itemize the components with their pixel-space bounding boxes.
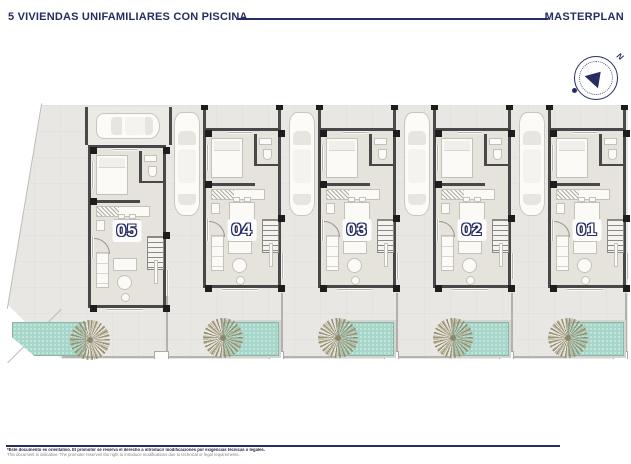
window — [206, 145, 209, 171]
floor-plan: 02 — [433, 128, 511, 288]
window — [321, 145, 324, 171]
toilet — [263, 149, 272, 160]
side-wall — [318, 107, 321, 128]
interior-wall — [254, 164, 280, 166]
tv-unit — [154, 260, 158, 284]
floor-plan: 04 — [203, 128, 281, 288]
bed — [96, 155, 128, 195]
bed — [326, 138, 358, 178]
interior-wall — [554, 183, 600, 186]
round-chair — [236, 276, 245, 285]
door-arc — [324, 221, 340, 237]
interior-wall — [254, 134, 257, 166]
sofa — [326, 235, 339, 271]
garden-door — [567, 288, 603, 291]
dining-table — [459, 202, 485, 220]
palm-tree-icon — [203, 318, 243, 358]
round-chair — [351, 276, 360, 285]
entrance-door — [573, 131, 597, 134]
side-wall — [623, 107, 626, 128]
garden-door — [107, 308, 143, 311]
page-title: 5 VIVIENDAS UNIFAMILIARES CON PISCINA — [8, 11, 248, 23]
interior-wall — [139, 151, 142, 183]
side-wall — [548, 107, 551, 128]
masterplan-label: MASTERPLAN — [545, 11, 624, 23]
entrance-door — [343, 131, 367, 134]
house-number: 04 — [232, 220, 253, 239]
sofa — [441, 235, 454, 271]
floor-plan: 03 — [318, 128, 396, 288]
bathroom-sink — [374, 138, 387, 145]
tv-unit — [499, 243, 503, 267]
side-wall — [278, 107, 281, 128]
car-icon — [519, 112, 545, 216]
bed — [556, 138, 588, 178]
dining-table — [344, 202, 370, 220]
compass-icon: N — [574, 56, 618, 100]
interior-wall — [484, 164, 510, 166]
window — [551, 145, 554, 171]
garden-door — [452, 288, 488, 291]
fridge — [211, 203, 220, 214]
bed — [211, 138, 243, 178]
interior-wall — [599, 134, 602, 166]
toilet — [608, 149, 617, 160]
house-number-badge: 01 — [573, 219, 602, 241]
bathroom-sink — [144, 155, 157, 162]
sofa — [343, 241, 367, 254]
round-table — [117, 275, 132, 290]
footer-disclaimer: *Este documento es orientativo. El promo… — [7, 448, 595, 458]
toilet — [378, 149, 387, 160]
door-arc — [209, 221, 225, 237]
car-icon — [96, 113, 160, 139]
round-table — [577, 258, 592, 273]
window — [626, 253, 629, 279]
fridge — [96, 220, 105, 231]
bed — [441, 138, 473, 178]
tv-unit — [269, 243, 273, 267]
toilet — [148, 166, 157, 177]
sofa — [113, 258, 137, 271]
sofa — [573, 241, 597, 254]
interior-wall — [139, 181, 165, 183]
floor-plan: 01 — [548, 128, 626, 288]
interior-wall — [369, 164, 395, 166]
entrance-door — [228, 131, 252, 134]
round-chair — [466, 276, 475, 285]
garden-door — [222, 288, 258, 291]
compass-dot — [572, 88, 577, 93]
sofa — [556, 235, 569, 271]
interior-wall — [439, 183, 485, 186]
round-table — [347, 258, 362, 273]
palm-tree-icon — [318, 318, 358, 358]
round-table — [462, 258, 477, 273]
entrance-door — [458, 131, 482, 134]
house-number: 01 — [577, 220, 598, 239]
garage — [85, 107, 172, 145]
disclaimer-en: This document is indicative. The promote… — [7, 453, 595, 458]
round-chair — [581, 276, 590, 285]
sofa — [228, 241, 252, 254]
footer-divider — [6, 445, 560, 447]
house-number-badge: 03 — [343, 219, 372, 241]
bathroom-sink — [489, 138, 502, 145]
bathroom-sink — [259, 138, 272, 145]
car-icon — [174, 112, 200, 216]
side-wall — [203, 107, 206, 128]
door-arc — [94, 238, 110, 254]
header-divider — [238, 18, 548, 20]
fridge — [441, 203, 450, 214]
window — [91, 162, 94, 188]
house-number: 02 — [462, 220, 483, 239]
dining-table — [574, 202, 600, 220]
palm-tree-icon — [548, 318, 588, 358]
dining-table — [229, 202, 255, 220]
tv-unit — [384, 243, 388, 267]
tv-unit — [614, 243, 618, 267]
house-number-badge: 02 — [458, 219, 487, 241]
round-table — [232, 258, 247, 273]
interior-wall — [599, 164, 625, 166]
sofa — [211, 235, 224, 271]
interior-wall — [324, 183, 370, 186]
side-wall — [433, 107, 436, 128]
interior-wall — [209, 183, 255, 186]
fridge — [556, 203, 565, 214]
garden-door — [337, 288, 373, 291]
round-chair — [121, 293, 130, 302]
bathroom-sink — [604, 138, 617, 145]
side-wall — [393, 107, 396, 128]
interior-wall — [369, 134, 372, 166]
interior-wall — [94, 200, 140, 203]
toilet — [493, 149, 502, 160]
door-arc — [439, 221, 455, 237]
floor-plan: 05 — [88, 145, 166, 308]
house-number: 03 — [347, 220, 368, 239]
sofa — [458, 241, 482, 254]
compass-north-label: N — [615, 51, 625, 62]
door-arc — [554, 221, 570, 237]
palm-tree-icon — [70, 320, 110, 360]
palm-tree-icon — [433, 318, 473, 358]
house-number-badge: 05 — [113, 220, 142, 242]
house-number: 05 — [117, 221, 138, 240]
house-number-badge: 04 — [228, 219, 257, 241]
masterplan-sheet: 5 VIVIENDAS UNIFAMILIARES CON PISCINA MA… — [0, 0, 631, 464]
side-wall — [508, 107, 511, 128]
window — [436, 145, 439, 171]
car-icon — [404, 112, 430, 216]
sofa — [96, 252, 109, 288]
interior-wall — [484, 134, 487, 166]
car-icon — [289, 112, 315, 216]
fridge — [326, 203, 335, 214]
entrance-door — [113, 148, 137, 151]
